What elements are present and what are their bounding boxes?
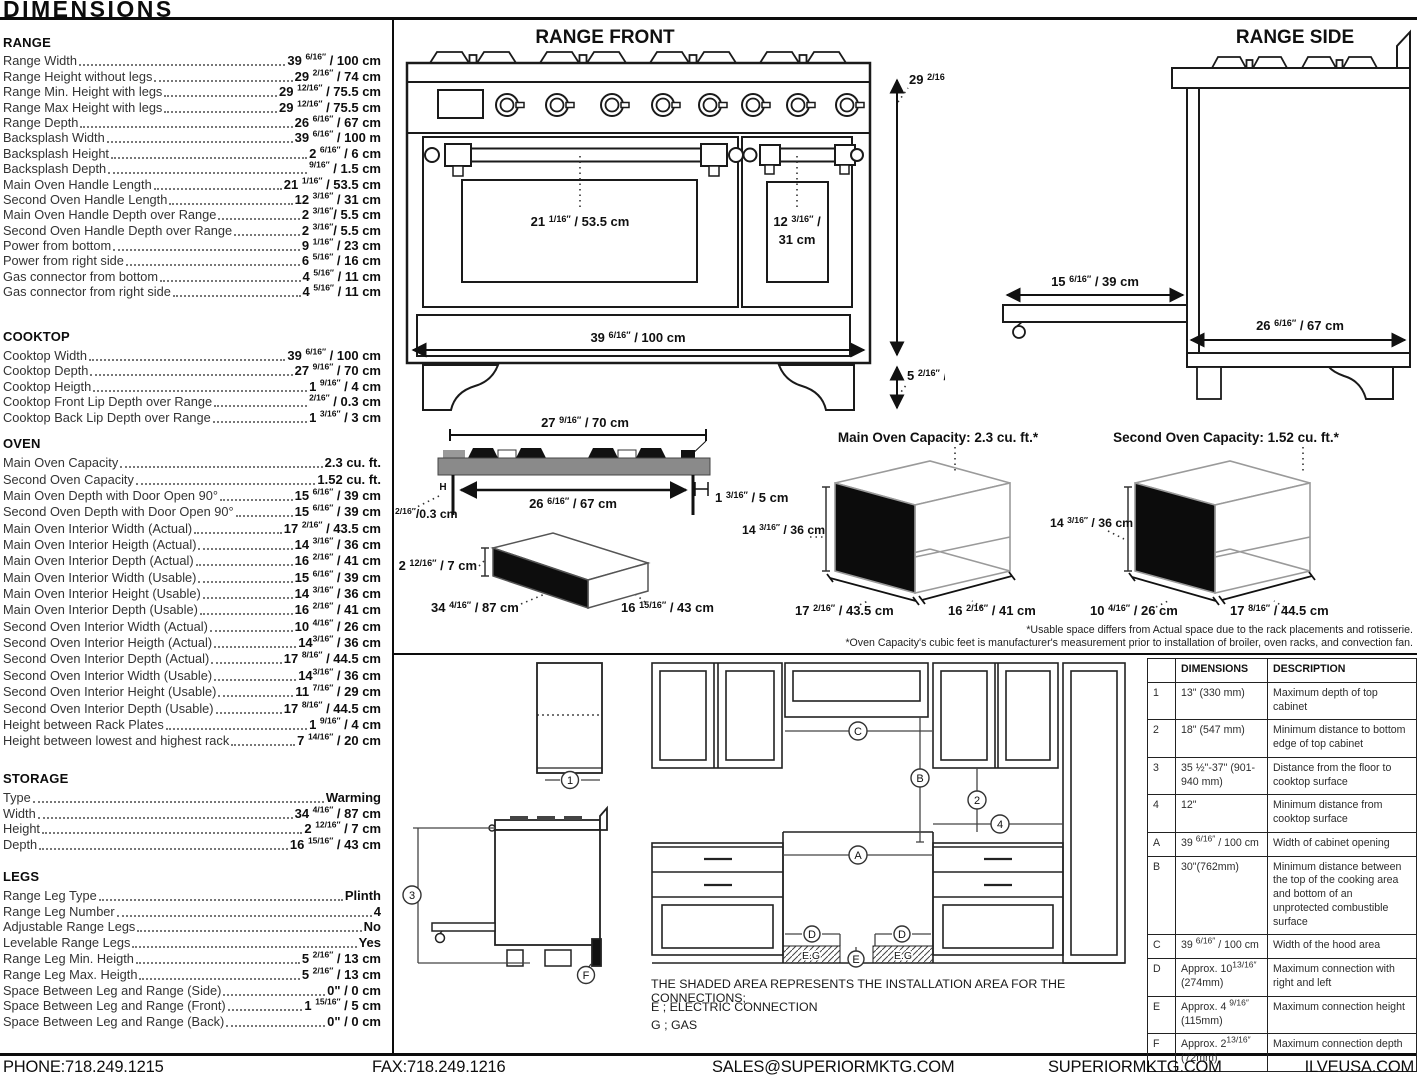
- spec-label: Height between Rack Plates: [3, 717, 164, 732]
- main-oven-height-dim: 14 3/16″ / 36 cm: [742, 522, 825, 537]
- horizontal-divider: [392, 653, 1417, 655]
- table-cell-dimension: Approx. 1013/16″ (274mm): [1175, 958, 1267, 996]
- spec-value: 2 6/16″ / 6 cm: [309, 146, 381, 161]
- spec-row: Second Oven Depth with Door Open 90° 15 …: [3, 503, 381, 519]
- spec-value: 14 3/16″ / 36 cm: [295, 586, 381, 601]
- leg-height-dim: 5 2/16″ / 13: [907, 368, 945, 383]
- table-cell-description: Maximum connection height: [1267, 996, 1416, 1034]
- dotted-leader: [169, 203, 292, 205]
- spec-row: Levelable Range Legs Yes: [3, 934, 381, 950]
- spec-label: Width: [3, 806, 36, 821]
- spec-value: 143/16″ / 36 cm: [298, 668, 381, 683]
- table-cell-id: A: [1148, 832, 1175, 856]
- spec-row: Range Leg Type Plinth: [3, 887, 381, 903]
- spec-value: 27 9/16″ / 70 cm: [295, 363, 381, 378]
- spec-value: 29 12/16″ / 75.5 cm: [279, 100, 381, 115]
- dotted-leader: [166, 728, 307, 730]
- table-cell-id: D: [1148, 958, 1175, 996]
- spec-row: Second Oven Interior Width (Actual) 10 4…: [3, 617, 381, 633]
- spec-label: Power from right side: [3, 253, 124, 268]
- second-handle-dim-2: 31 cm: [779, 232, 816, 247]
- spec-row: Range Leg Min. Heigth 5 2/16″ / 13 cm: [3, 950, 381, 966]
- dotted-leader: [214, 405, 307, 407]
- table-cell-description: Minimum distance between the top of the …: [1267, 856, 1416, 935]
- dotted-leader: [200, 613, 293, 615]
- range-depth-dim: 26 6/16″ / 67 cm: [1256, 318, 1344, 333]
- table-cell-dimension: 39 6/16″ / 100 cm: [1175, 934, 1267, 958]
- table-header-dimensions: DIMENSIONS: [1175, 659, 1267, 682]
- range-side-figure: RANGE SIDE 15 6/16″ / 39 cm 26 6/16″ / 6…: [950, 24, 1417, 404]
- spec-value: 5 2/16″ / 13 cm: [302, 951, 381, 966]
- spec-list: Range Width 39 6/16″ / 100 cm Range Heig…: [3, 53, 381, 299]
- spec-row: Main Oven Handle Depth over Range 2 3/16…: [3, 207, 381, 222]
- spec-value: Yes: [359, 935, 381, 950]
- spec-label: Range Leg Max. Heigth: [3, 967, 137, 982]
- spec-row: Range Depth 26 6/16″ / 67 cm: [3, 115, 381, 130]
- callout-2: 2: [974, 795, 980, 807]
- spec-label: Range Leg Number: [3, 904, 115, 919]
- spec-label: Space Between Leg and Range (Back): [3, 1014, 224, 1029]
- spec-row: Second Oven Interior Heigth (Actual) 143…: [3, 634, 381, 650]
- spec-value: Warming: [326, 790, 381, 805]
- spec-row: Second Oven Handle Length 12 3/16″ / 31 …: [3, 192, 381, 207]
- spec-value: 5 2/16″ / 13 cm: [302, 967, 381, 982]
- dotted-leader: [198, 548, 292, 550]
- section-cooktop: COOKTOP Cooktop Width 39 6/16″ / 100 cm …: [3, 329, 381, 425]
- spec-label: Second Oven Handle Length: [3, 192, 167, 207]
- spec-value: 26 6/16″ / 67 cm: [295, 115, 381, 130]
- dotted-leader: [90, 374, 292, 376]
- section-oven: OVEN Main Oven Capacity 2.3 cu. ft. Seco…: [3, 436, 381, 748]
- table-row: A 39 6/16″ / 100 cm Width of cabinet ope…: [1148, 832, 1416, 856]
- spec-row: Range Leg Max. Heigth 5 2/16″ / 13 cm: [3, 966, 381, 982]
- footer-website: SUPERIORMKTG.COM: [1048, 1058, 1222, 1077]
- spec-label: Range Width: [3, 53, 77, 68]
- spec-row: Main Oven Interior Width (Usable) 15 6/1…: [3, 568, 381, 584]
- dotted-leader: [196, 564, 293, 566]
- table-cell-description: Width of cabinet opening: [1267, 832, 1416, 856]
- spec-value: 15 6/16″ / 39 cm: [295, 504, 381, 519]
- table-row: B 30"(762mm) Minimum distance between th…: [1148, 856, 1416, 935]
- second-oven-capacity-title: Second Oven Capacity: 1.52 cu. ft.*: [1113, 430, 1340, 445]
- install-note-electric: E ; ELECTRIC CONNECTION: [651, 1000, 1131, 1014]
- main-oven-capacity-title: Main Oven Capacity: 2.3 cu. ft.*: [838, 430, 1039, 445]
- dotted-leader: [164, 111, 277, 113]
- spec-row: Height between lowest and highest rack 7…: [3, 732, 381, 748]
- footer-brand: ILVEUSA.COM: [1305, 1058, 1414, 1077]
- spec-value: 12 3/16″ / 31 cm: [295, 192, 381, 207]
- spec-row: Gas connector from bottom 4 5/16″ / 11 c…: [3, 268, 381, 283]
- dotted-leader: [126, 264, 300, 266]
- dotted-leader: [139, 978, 299, 980]
- spec-label: Main Oven Interior Depth (Usable): [3, 602, 198, 617]
- spec-row: Space Between Leg and Range (Front) 1 15…: [3, 998, 381, 1014]
- dotted-leader: [93, 390, 307, 392]
- spec-row: Main Oven Interior Width (Actual) 17 2/1…: [3, 519, 381, 535]
- spec-list: Cooktop Width 39 6/16″ / 100 cm Cooktop …: [3, 347, 381, 425]
- section-heading: LEGS: [3, 869, 381, 884]
- table-cell-id: E: [1148, 996, 1175, 1034]
- spec-label: Levelable Range Legs: [3, 935, 130, 950]
- range-side-title: RANGE SIDE: [1236, 27, 1354, 48]
- spec-row: Main Oven Depth with Door Open 90° 15 6/…: [3, 487, 381, 503]
- callout-d-right: D: [898, 929, 906, 941]
- section-storage: STORAGE Type Warming Width 34 4/16″ / 87…: [3, 771, 381, 852]
- callout-3: 3: [409, 890, 415, 902]
- spec-row: Power from bottom 9 1/16″ / 23 cm: [3, 238, 381, 253]
- spec-value: 1 9/16″ / 4 cm: [309, 717, 381, 732]
- spec-row: Height 2 12/16″ / 7 cm: [3, 821, 381, 837]
- dotted-leader: [234, 234, 300, 236]
- spec-label: Range Leg Type: [3, 888, 97, 903]
- spec-label: Range Max Height with legs: [3, 100, 162, 115]
- table-cell-id: 1: [1148, 682, 1175, 720]
- spec-row: Second Oven Interior Depth (Usable) 17 8…: [3, 699, 381, 715]
- cooktop-width-dim: 27 9/16″ / 70 cm: [541, 415, 629, 430]
- spec-label: Second Oven Interior Depth (Actual): [3, 651, 209, 666]
- range-front-figure: RANGE FRONT 21 1/16″ / 53.5 cm 12 3/16″ …: [395, 24, 945, 416]
- spec-value: 29 12/16″ / 75.5 cm: [279, 84, 381, 99]
- spec-row: Second Oven Interior Width (Usable) 143/…: [3, 666, 381, 682]
- spec-label: Second Oven Interior Width (Actual): [3, 619, 208, 634]
- spec-row: Space Between Leg and Range (Back) 0" / …: [3, 1013, 381, 1029]
- install-front-figure: E.G E.G C B 2 4 A D D E: [648, 656, 1140, 976]
- dotted-leader: [216, 712, 282, 714]
- table-cell-dimension: 35 ½"-37" (901-940 mm): [1175, 757, 1267, 795]
- spec-row: Type Warming: [3, 789, 381, 805]
- spec-label: Range Height without legs: [3, 69, 152, 84]
- spec-value: 34 4/16″ / 87 cm: [295, 806, 381, 821]
- spec-value: 2.3 cu. ft.: [325, 455, 381, 470]
- callout-f: F: [583, 970, 590, 982]
- dotted-leader: [173, 295, 301, 297]
- spec-value: 143/16″ / 36 cm: [298, 635, 381, 650]
- cooktop-h-label: H: [439, 482, 446, 493]
- dotted-leader: [226, 1025, 325, 1027]
- dotted-leader: [231, 744, 295, 746]
- spec-value: 15 6/16″ / 39 cm: [295, 488, 381, 503]
- storage-width-dim: 34 4/16″ / 87 cm: [431, 600, 519, 615]
- table-cell-dimension: 18" (547 mm): [1175, 719, 1267, 757]
- spec-label: Depth: [3, 837, 37, 852]
- dotted-leader: [136, 962, 300, 964]
- spec-row: Backsplash Width 39 6/16″ / 100 m: [3, 130, 381, 145]
- dotted-leader: [211, 662, 281, 664]
- callout-d-left: D: [808, 929, 816, 941]
- table-cell-id: 2: [1148, 719, 1175, 757]
- table-cell-dimension: Approx. 4 9/16″ (115mm): [1175, 996, 1267, 1034]
- spec-label: Cooktop Width: [3, 348, 87, 363]
- title-underline: [0, 17, 1417, 20]
- main-handle-dim: 21 1/16″ / 53.5 cm: [531, 214, 630, 229]
- table-cell-description: Maximum connection with right and left: [1267, 958, 1416, 996]
- spec-label: Second Oven Interior Heigth (Actual): [3, 635, 212, 650]
- spec-value: No: [364, 919, 381, 934]
- spec-row: Main Oven Interior Depth (Usable) 16 2/1…: [3, 601, 381, 617]
- table-cell-dimension: 13" (330 mm): [1175, 682, 1267, 720]
- install-note-gas: G ; GAS: [651, 1018, 1131, 1032]
- main-oven-width-dim: 17 2/16″ / 43.5 cm: [795, 603, 894, 618]
- dotted-leader: [213, 421, 307, 423]
- spec-row: Cooktop Heigth 1 9/16″ / 4 cm: [3, 378, 381, 394]
- footer-email: SALES@SUPERIORMKTG.COM: [712, 1058, 954, 1077]
- callout-a: A: [854, 850, 862, 862]
- cooktop-inner-width-dim: 26 6/16″ / 67 cm: [529, 496, 617, 511]
- footer-fax: FAX:718.249.1216: [372, 1058, 506, 1077]
- spec-value: 0" / 0 cm: [327, 983, 381, 998]
- table-row: D Approx. 1013/16″ (274mm) Maximum conne…: [1148, 958, 1416, 996]
- dotted-leader: [111, 157, 307, 159]
- dotted-leader: [228, 1009, 303, 1011]
- spec-row: Second Oven Handle Depth over Range 2 3/…: [3, 222, 381, 237]
- spec-label: Space Between Leg and Range (Front): [3, 998, 226, 1013]
- callout-e: E: [852, 954, 859, 966]
- table-header-row: DIMENSIONS DESCRIPTION: [1148, 659, 1416, 682]
- spec-label: Second Oven Depth with Door Open 90°: [3, 504, 234, 519]
- spec-row: Range Max Height with legs 29 12/16″ / 7…: [3, 99, 381, 114]
- spec-value: 17 8/16″ / 44.5 cm: [284, 651, 381, 666]
- spec-label: Backsplash Height: [3, 146, 109, 161]
- spec-label: Main Oven Interior Height (Usable): [3, 586, 201, 601]
- table-cell-id: 4: [1148, 794, 1175, 832]
- spec-list: Range Leg Type Plinth Range Leg Number 4…: [3, 887, 381, 1029]
- spec-value: 6 5/16″ / 16 cm: [302, 253, 381, 268]
- spec-label: Cooktop Heigth: [3, 379, 91, 394]
- table-row: 2 18" (547 mm) Minimum distance to botto…: [1148, 719, 1416, 757]
- spec-value: 2 3/16″/ 5.5 cm: [302, 223, 381, 238]
- spec-label: Power from bottom: [3, 238, 111, 253]
- spec-label: Main Oven Handle Depth over Range: [3, 207, 216, 222]
- spec-value: 21 1/16″ / 53.5 cm: [284, 177, 381, 192]
- footnote-2: *Oven Capacity's cubic feet is manufactu…: [653, 637, 1413, 649]
- spec-row: Main Oven Interior Heigth (Actual) 14 3/…: [3, 536, 381, 552]
- section-heading: RANGE: [3, 35, 381, 50]
- spec-label: Range Leg Min. Heigth: [3, 951, 134, 966]
- dotted-leader: [223, 994, 325, 996]
- dotted-leader: [198, 581, 292, 583]
- dotted-leader: [33, 801, 324, 803]
- spec-value: 2 3/16″/ 5.5 cm: [302, 207, 381, 222]
- spec-value: Plinth: [345, 888, 381, 903]
- table-row: 1 13" (330 mm) Maximum depth of top cabi…: [1148, 682, 1416, 720]
- spec-row: Cooktop Depth 27 9/16″ / 70 cm: [3, 363, 381, 379]
- spec-value: 39 6/16″ / 100 m: [295, 130, 381, 145]
- footer-phone: PHONE:718.249.1215: [3, 1058, 164, 1077]
- table-row: C 39 6/16″ / 100 cm Width of the hood ar…: [1148, 934, 1416, 958]
- spec-list: Main Oven Capacity 2.3 cu. ft. Second Ov…: [3, 454, 381, 748]
- dotted-leader: [236, 515, 293, 517]
- dotted-leader: [117, 915, 372, 917]
- spec-label: Range Min. Height with legs: [3, 84, 162, 99]
- spec-value: 17 8/16″ / 44.5 cm: [284, 701, 381, 716]
- table-cell-dimension: 12": [1175, 794, 1267, 832]
- spec-value: 11 7/16″ / 29 cm: [295, 684, 381, 699]
- callout-b: B: [916, 773, 923, 785]
- dotted-leader: [194, 532, 282, 534]
- spec-label: Second Oven Handle Depth over Range: [3, 223, 232, 238]
- spec-label: Main Oven Capacity: [3, 455, 118, 470]
- section-heading: STORAGE: [3, 771, 381, 786]
- table-cell-id: 3: [1148, 757, 1175, 795]
- main-oven-depth-dim: 16 2/16″ / 41 cm: [948, 603, 1036, 618]
- table-cell-id: B: [1148, 856, 1175, 935]
- spec-row: Main Oven Capacity 2.3 cu. ft.: [3, 454, 381, 470]
- spec-value: 1 15/16″ / 5 cm: [304, 998, 381, 1013]
- eg-label-right: E.G: [894, 950, 912, 962]
- dotted-leader: [42, 832, 302, 834]
- spec-label: Type: [3, 790, 31, 805]
- spec-value: 15 6/16″ / 39 cm: [295, 570, 381, 585]
- spec-row: Gas connector from right side 4 5/16″ / …: [3, 284, 381, 299]
- footnote-1: *Usable space differs from Actual space …: [653, 624, 1413, 636]
- install-side-figure: 1 3 F: [395, 656, 650, 1010]
- dotted-leader: [99, 899, 343, 901]
- table-row: 4 12" Minimum distance from cooktop surf…: [1148, 794, 1416, 832]
- dotted-leader: [107, 141, 293, 143]
- callout-1: 1: [567, 775, 573, 787]
- spec-value: 1.52 cu. ft.: [317, 472, 381, 487]
- spec-value: 29 2/16″ / 74 cm: [295, 69, 381, 84]
- spec-row: Second Oven Interior Depth (Actual) 17 8…: [3, 650, 381, 666]
- spec-row: Range Leg Number 4: [3, 903, 381, 919]
- range-height-dim: 29 2/16″ / 74 cm: [909, 72, 945, 87]
- second-oven-depth-dim: 17 8/16″ / 44.5 cm: [1230, 603, 1329, 618]
- second-oven-figure: Second Oven Capacity: 1.52 cu. ft.* 14 3…: [1048, 425, 1417, 620]
- spec-value: 1 3/16″ / 3 cm: [309, 410, 381, 425]
- spec-label: Second Oven Capacity: [3, 472, 134, 487]
- table-header-id: [1148, 659, 1175, 682]
- spec-row: Main Oven Interior Height (Usable) 14 3/…: [3, 585, 381, 601]
- storage-height-dim: 2 12/16″ / 7 cm: [399, 558, 477, 573]
- spec-label: Range Depth: [3, 115, 78, 130]
- spec-row: Range Height without legs 29 2/16″ / 74 …: [3, 68, 381, 83]
- spec-value: 39 6/16″ / 100 cm: [287, 53, 381, 68]
- front-lip-dim: 2/16″/0.3 cm: [395, 506, 458, 521]
- spec-label: Cooktop Depth: [3, 363, 88, 378]
- second-oven-height-dim: 14 3/16″ / 36 cm: [1050, 515, 1133, 530]
- table-row: 3 35 ½"-37" (901-940 mm) Distance from t…: [1148, 757, 1416, 795]
- spec-label: Gas connector from bottom: [3, 269, 158, 284]
- second-oven-width-dim: 10 4/16″ / 26 cm: [1090, 603, 1178, 618]
- spec-label: Adjustable Range Legs: [3, 919, 135, 934]
- spec-label: Gas connector from right side: [3, 284, 171, 299]
- table-body: 1 13" (330 mm) Maximum depth of top cabi…: [1148, 682, 1416, 1071]
- dotted-leader: [137, 930, 361, 932]
- dotted-leader: [154, 80, 292, 82]
- spec-value: 17 2/16″ / 43.5 cm: [284, 521, 381, 536]
- spec-row: Space Between Leg and Range (Side) 0" / …: [3, 982, 381, 998]
- dotted-leader: [218, 218, 299, 220]
- spec-value: 9 1/16″ / 23 cm: [302, 238, 381, 253]
- spec-label: Main Oven Interior Width (Actual): [3, 521, 192, 536]
- dotted-leader: [136, 483, 316, 485]
- spec-value: 16 2/16″ / 41 cm: [295, 602, 381, 617]
- spec-label: Backsplash Width: [3, 130, 105, 145]
- spec-label: Second Oven Interior Width (Usable): [3, 668, 212, 683]
- dotted-leader: [214, 679, 296, 681]
- callout-4: 4: [997, 819, 1003, 831]
- spec-value: 39 6/16″ / 100 cm: [287, 348, 381, 363]
- dotted-leader: [38, 817, 293, 819]
- table-cell-description: Minimum distance to bottom edge of top c…: [1267, 719, 1416, 757]
- dotted-leader: [113, 249, 300, 251]
- spec-row: Depth 16 15/16″ / 43 cm: [3, 836, 381, 852]
- dotted-leader: [160, 280, 300, 282]
- section-range: RANGE Range Width 39 6/16″ / 100 cm Rang…: [3, 35, 381, 299]
- spec-row: Backsplash Depth 9/16″ / 1.5 cm: [3, 161, 381, 176]
- spec-label: Height: [3, 821, 40, 836]
- dotted-leader: [220, 499, 293, 501]
- dotted-leader: [132, 946, 356, 948]
- table-row: E Approx. 4 9/16″ (115mm) Maximum connec…: [1148, 996, 1416, 1034]
- dotted-leader: [39, 848, 288, 850]
- section-legs: LEGS Range Leg Type Plinth Range Leg Num…: [3, 869, 381, 1029]
- eg-label-left: E.G: [802, 950, 820, 962]
- table-cell-description: Minimum distance from cooktop surface: [1267, 794, 1416, 832]
- table-cell-description: Width of the hood area: [1267, 934, 1416, 958]
- spec-row: Main Oven Handle Length 21 1/16″ / 53.5 …: [3, 176, 381, 191]
- spec-label: Main Oven Interior Heigth (Actual): [3, 537, 196, 552]
- spec-row: Cooktop Width 39 6/16″ / 100 cm: [3, 347, 381, 363]
- dotted-leader: [108, 172, 307, 174]
- spec-label: Height between lowest and highest rack: [3, 733, 229, 748]
- spec-label: Main Oven Depth with Door Open 90°: [3, 488, 218, 503]
- spec-value: 4 5/16″ / 11 cm: [303, 269, 381, 284]
- spec-value: 10 4/16″ / 26 cm: [295, 619, 381, 634]
- main-oven-figure: Main Oven Capacity: 2.3 cu. ft.* 14 3/16…: [740, 425, 1050, 620]
- spec-label: Second Oven Interior Height (Usable): [3, 684, 216, 699]
- spec-row: Backsplash Height 2 6/16″ / 6 cm: [3, 145, 381, 160]
- spec-label: Main Oven Interior Depth (Actual): [3, 553, 194, 568]
- spec-value: 4: [374, 904, 381, 919]
- spec-label: Main Oven Interior Width (Usable): [3, 570, 196, 585]
- spec-value: 0" / 0 cm: [327, 1014, 381, 1029]
- dotted-leader: [154, 188, 282, 190]
- dotted-leader: [80, 126, 292, 128]
- dotted-leader: [218, 695, 293, 697]
- spec-label: Space Between Leg and Range (Side): [3, 983, 221, 998]
- spec-row: Cooktop Back Lip Depth over Range 1 3/16…: [3, 409, 381, 425]
- spec-label: Main Oven Handle Length: [3, 177, 152, 192]
- spec-label: Cooktop Back Lip Depth over Range: [3, 410, 211, 425]
- spec-row: Second Oven Capacity 1.52 cu. ft.: [3, 470, 381, 486]
- spec-value: 9/16″ / 1.5 cm: [309, 161, 381, 176]
- dotted-leader: [210, 630, 293, 632]
- spec-row: Adjustable Range Legs No: [3, 919, 381, 935]
- section-heading: OVEN: [3, 436, 381, 451]
- spec-row: Height between Rack Plates 1 9/16″ / 4 c…: [3, 716, 381, 732]
- spec-label: Cooktop Front Lip Depth over Range: [3, 394, 212, 409]
- spec-list: Type Warming Width 34 4/16″ / 87 cm Heig…: [3, 789, 381, 852]
- spec-value: 16 15/16″ / 43 cm: [290, 837, 381, 852]
- spec-row: Main Oven Interior Depth (Actual) 16 2/1…: [3, 552, 381, 568]
- spec-label: Backsplash Depth: [3, 161, 106, 176]
- spec-row: Second Oven Interior Height (Usable) 11 …: [3, 683, 381, 699]
- spec-value: 7 14/16″ / 20 cm: [297, 733, 381, 748]
- spec-value: 2/16″ / 0.3 cm: [309, 394, 381, 409]
- spec-row: Cooktop Front Lip Depth over Range 2/16″…: [3, 394, 381, 410]
- spec-row: Power from right side 6 5/16″ / 16 cm: [3, 253, 381, 268]
- range-front-title: RANGE FRONT: [535, 27, 675, 48]
- table-cell-dimension: 39 6/16″ / 100 cm: [1175, 832, 1267, 856]
- table-cell-description: Distance from the floor to cooktop surfa…: [1267, 757, 1416, 795]
- range-width-dim: 39 6/16″ / 100 cm: [590, 330, 685, 345]
- dotted-leader: [89, 359, 285, 361]
- table-cell-id: C: [1148, 934, 1175, 958]
- spec-value: 14 3/16″ / 36 cm: [295, 537, 381, 552]
- spec-row: Range Width 39 6/16″ / 100 cm: [3, 53, 381, 68]
- spec-value: 4 5/16″ / 11 cm: [303, 284, 381, 299]
